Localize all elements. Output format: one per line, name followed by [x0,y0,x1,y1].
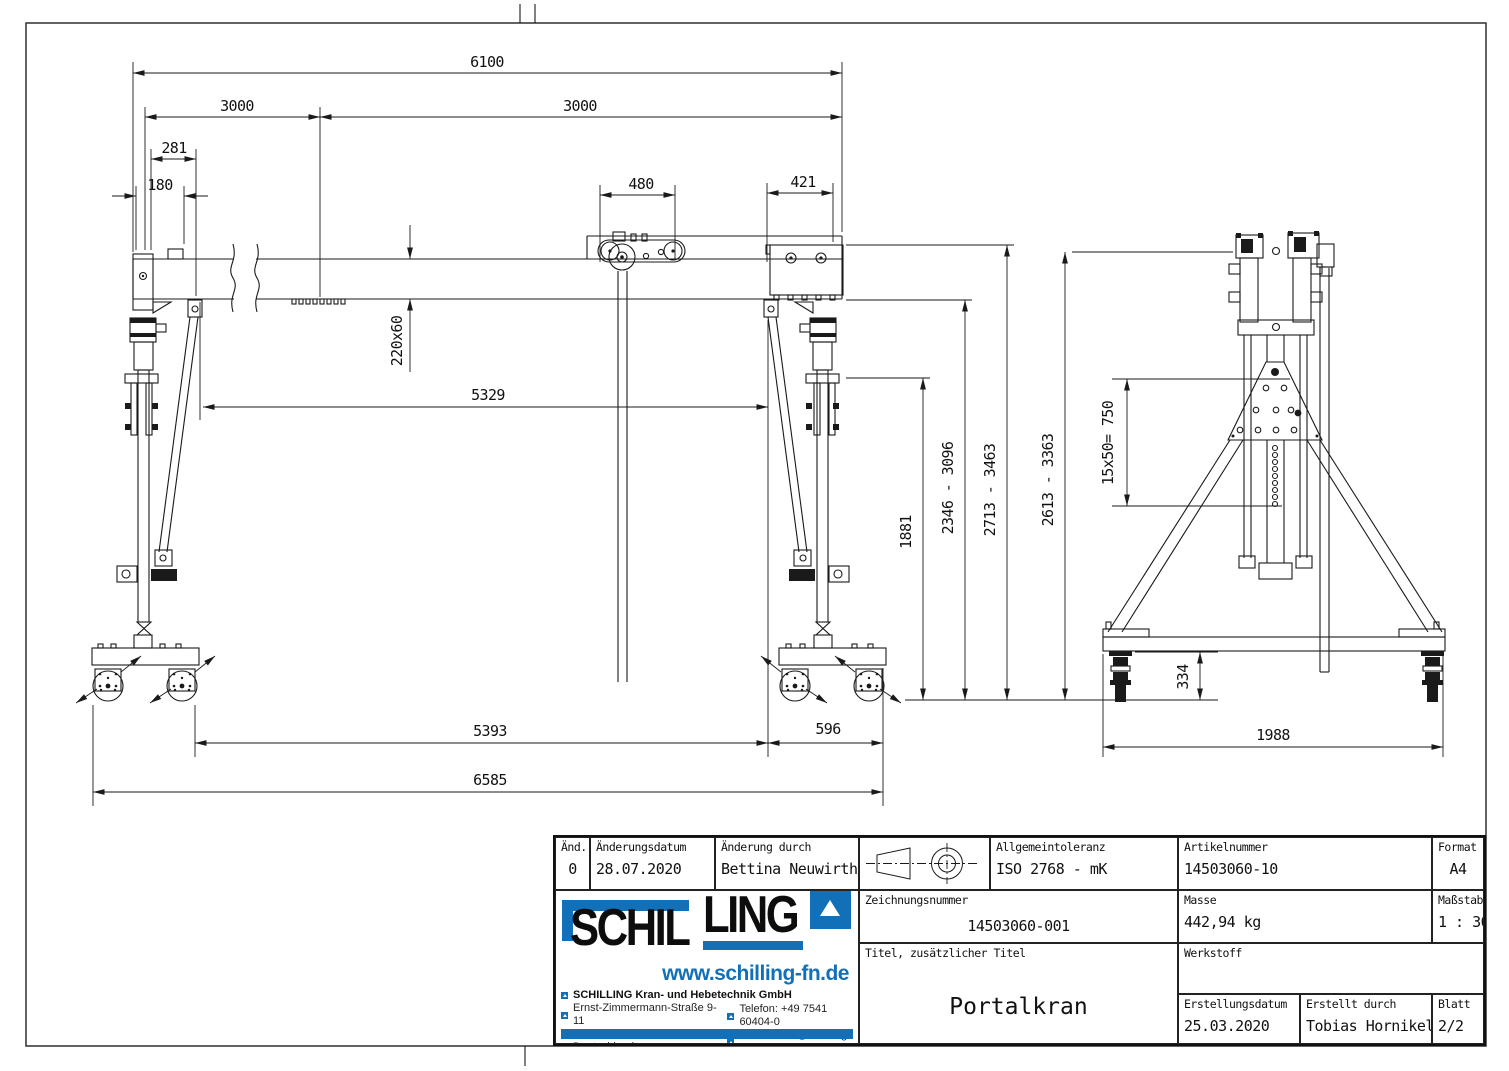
right-beam-bracket [766,245,843,300]
dim-label: 6585 [473,771,507,789]
field-label: Änd. [561,840,584,854]
dim-span-left: 3000 [145,97,320,297]
dim-label: 2346 - 3096 [939,441,957,534]
right-leg [764,300,849,648]
dim-caster-span: 596 [768,668,883,806]
trolley-hoist [598,232,685,270]
dim-label: 2713 - 3463 [981,444,999,537]
side-view [1103,231,1445,702]
company-phone: Telefon: +49 7541 60404-0 [739,1003,853,1029]
dim-label: 334 [1174,664,1192,690]
gusset-plate [1228,362,1322,440]
company-country: Deutschland [573,1041,634,1044]
dim-label: 480 [628,175,654,193]
dim-label: 596 [815,720,841,738]
dim-lift-range-outer: 2713 - 3463 [846,245,1014,700]
left-leg [117,249,202,648]
dim-overall-length: 6585 [93,705,883,806]
dim-span-right: 3000 [320,97,842,117]
field-value: 442,94 kg [1184,913,1426,931]
dim-leg-offset: 281 [151,139,196,296]
field-label: Allgemeintoleranz [996,840,1172,854]
field-label: Format [1438,840,1478,854]
side-casters [1109,651,1444,702]
field-label: Änderungsdatum [596,840,709,854]
field-value: Bettina Neuwirth [721,860,853,878]
field-value: 0 [561,860,584,878]
side-chain [1320,268,1329,672]
field-value: A4 [1438,860,1478,878]
company-name: SCHILLING Kran- und Hebetechnik GmbH [573,989,792,1002]
field-created-by: Erstellt durch Tobias Hornikel [1300,994,1432,1044]
field-value: 2/2 [1438,1017,1478,1035]
dim-end-offset: 180 [112,176,208,250]
dim-side-height-range: 2613 - 3363 [1039,252,1233,700]
schilling-logo: SCHIL LING [561,894,853,960]
field-revision-by: Änderung durch Bettina Neuwirth [715,837,859,890]
side-base [1103,622,1445,651]
field-created-date: Erstellungsdatum 25.03.2020 [1178,994,1300,1044]
field-label: Masse [1184,893,1426,907]
dim-label: 6100 [470,53,504,71]
logo-underline-bar [703,941,803,950]
dim-label: 2613 - 3363 [1039,434,1057,527]
field-revision: Änd. 0 [555,837,590,890]
field-label: Artikelnummer [1184,840,1426,854]
dimensions: 6100 3000 3000 281 180 480 [93,53,1443,806]
dim-label: 1988 [1256,726,1290,744]
bullet-icon [727,1013,734,1020]
field-format: Format A4 [1432,837,1484,890]
field-label: Werkstoff [1184,946,1478,960]
first-angle-projection-icon [859,837,990,890]
field-tolerance: Allgemeintoleranz ISO 2768 - mK [990,837,1178,890]
dim-overall-width: 6100 [133,53,842,252]
logo-text-ling: LING [703,890,797,941]
field-drawing-number: Zeichnungsnummer 14503060-001 [859,890,1178,943]
field-revision-date: Änderungsdatum 28.07.2020 [590,837,715,890]
field-label: Erstellt durch [1306,997,1426,1011]
dim-label: 5393 [473,722,507,740]
field-value: ISO 2768 - mK [996,860,1172,878]
logo-triangle-icon [810,890,851,929]
dim-leg-height: 1881 [846,378,930,700]
dim-lift-range-inner: 2346 - 3096 [846,300,972,700]
logo-bottom-bar [561,1029,853,1039]
field-scale: Maßstab 1 : 30 [1432,890,1484,943]
dim-side-base-width: 1988 [1103,654,1443,757]
company-street: Ernst-Zimmermann-Straße 9-11 [573,1002,727,1028]
field-label: Änderung durch [721,840,853,854]
dim-label: 3000 [563,97,597,115]
side-diagonal-braces [1108,440,1442,632]
field-label: Zeichnungsnummer [865,893,1172,907]
bullet-icon [727,1039,734,1045]
projection-symbol-graphic [860,838,989,888]
field-value: 25.03.2020 [1184,1017,1294,1035]
dim-bracket-width: 421 [767,173,833,262]
field-label: Maßstab [1438,893,1478,907]
dim-base-span: 5393 [195,705,768,757]
hoist-chain [618,271,627,682]
beam-rack-teeth [292,299,345,304]
dim-label: 5329 [471,386,505,404]
dim-label: 15x50= 750 [1099,400,1117,485]
field-label: Blatt [1438,997,1478,1011]
field-value: 1 : 30 [1438,913,1478,931]
field-mass: Masse 442,94 kg [1178,890,1432,943]
dim-label: 220x60 [388,315,406,366]
height-adjustment-holes [1273,446,1278,507]
dim-label: 421 [790,173,816,191]
field-value: 14503060-10 [1184,860,1426,878]
bullet-icon [561,1012,568,1019]
field-title: Titel, zusätzlicher Titel Portalkran [859,943,1178,1044]
left-base-casters [76,644,215,703]
dim-label: 281 [161,139,187,157]
title-block: Änd. 0 Änderungsdatum 28.07.2020 Änderun… [553,835,1486,1046]
field-material: Werkstoff [1178,943,1484,994]
field-article-number: Artikelnummer 14503060-10 [1178,837,1432,890]
dim-label: 180 [147,176,173,194]
field-value: Tobias Hornikel [1306,1017,1426,1035]
drawing-title: Portalkran [865,994,1172,1020]
girder-beam [133,236,842,312]
dim-label: 3000 [220,97,254,115]
dim-label: 1881 [897,515,915,549]
company-logo-cell: SCHIL LING www.schilling-fn.de SCHILLING… [555,890,859,1044]
fold-marks [520,4,535,1066]
field-value: 28.07.2020 [596,860,709,878]
field-sheet: Blatt 2/2 [1432,994,1484,1044]
company-website-link[interactable]: www.schilling-fn.de [561,962,849,986]
field-value: 14503060-001 [865,917,1172,935]
dim-hole-pattern: 15x50= 750 [1099,379,1290,506]
side-mast [1238,320,1314,579]
dim-caster-height: 334 [1135,652,1218,700]
side-trolley [1229,231,1334,322]
dim-hook-travel: 5329 [200,302,768,757]
logo-text-schil: SCHIL [570,902,688,954]
right-base-casters [761,644,901,703]
drawing-sheet: { "drawing": { "title": "Portalkran", "d… [0,0,1509,1071]
field-label: Titel, zusätzlicher Titel [865,946,1172,960]
field-label: Erstellungsdatum [1184,997,1294,1011]
bullet-icon [561,992,568,999]
